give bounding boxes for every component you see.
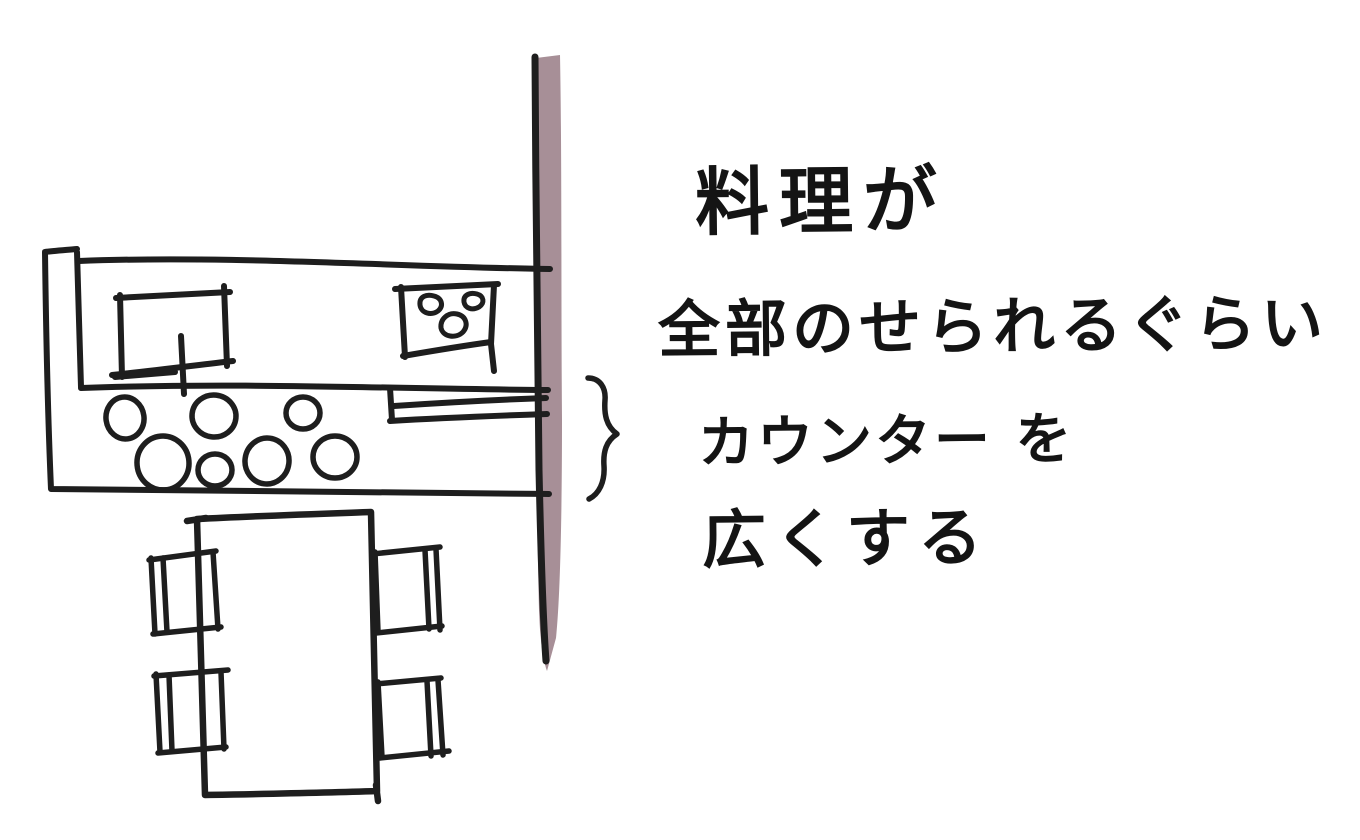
floor-plan-drawing	[0, 0, 1360, 840]
serving-bar	[390, 388, 547, 421]
faucet	[181, 336, 184, 394]
burner	[441, 314, 466, 337]
burner	[420, 295, 442, 313]
dishes	[103, 393, 357, 492]
dish	[198, 454, 232, 486]
dish	[190, 393, 238, 439]
note-line-2: 全部のせられるぐらい	[658, 292, 1329, 361]
note-line-3: カウンター を	[698, 412, 1075, 472]
dish	[135, 434, 192, 492]
burner	[464, 293, 483, 308]
chair-bottom-right	[375, 678, 449, 758]
dish	[286, 397, 320, 429]
note-line-1: 料理が	[695, 164, 948, 241]
dish	[313, 436, 357, 478]
chair-top-left	[149, 551, 221, 634]
ink-lines	[45, 57, 617, 801]
chair-top-right	[372, 547, 442, 633]
note-line-4: 広くする	[702, 506, 991, 573]
chair-bottom-left	[154, 670, 228, 753]
dish	[103, 395, 146, 442]
burners	[420, 293, 483, 336]
sink	[112, 286, 233, 377]
sketch-canvas: 料理が 全部のせられるぐらい カウンター を 広くする	[0, 0, 1360, 840]
dish	[242, 435, 291, 486]
curly-brace-mark	[588, 378, 617, 499]
